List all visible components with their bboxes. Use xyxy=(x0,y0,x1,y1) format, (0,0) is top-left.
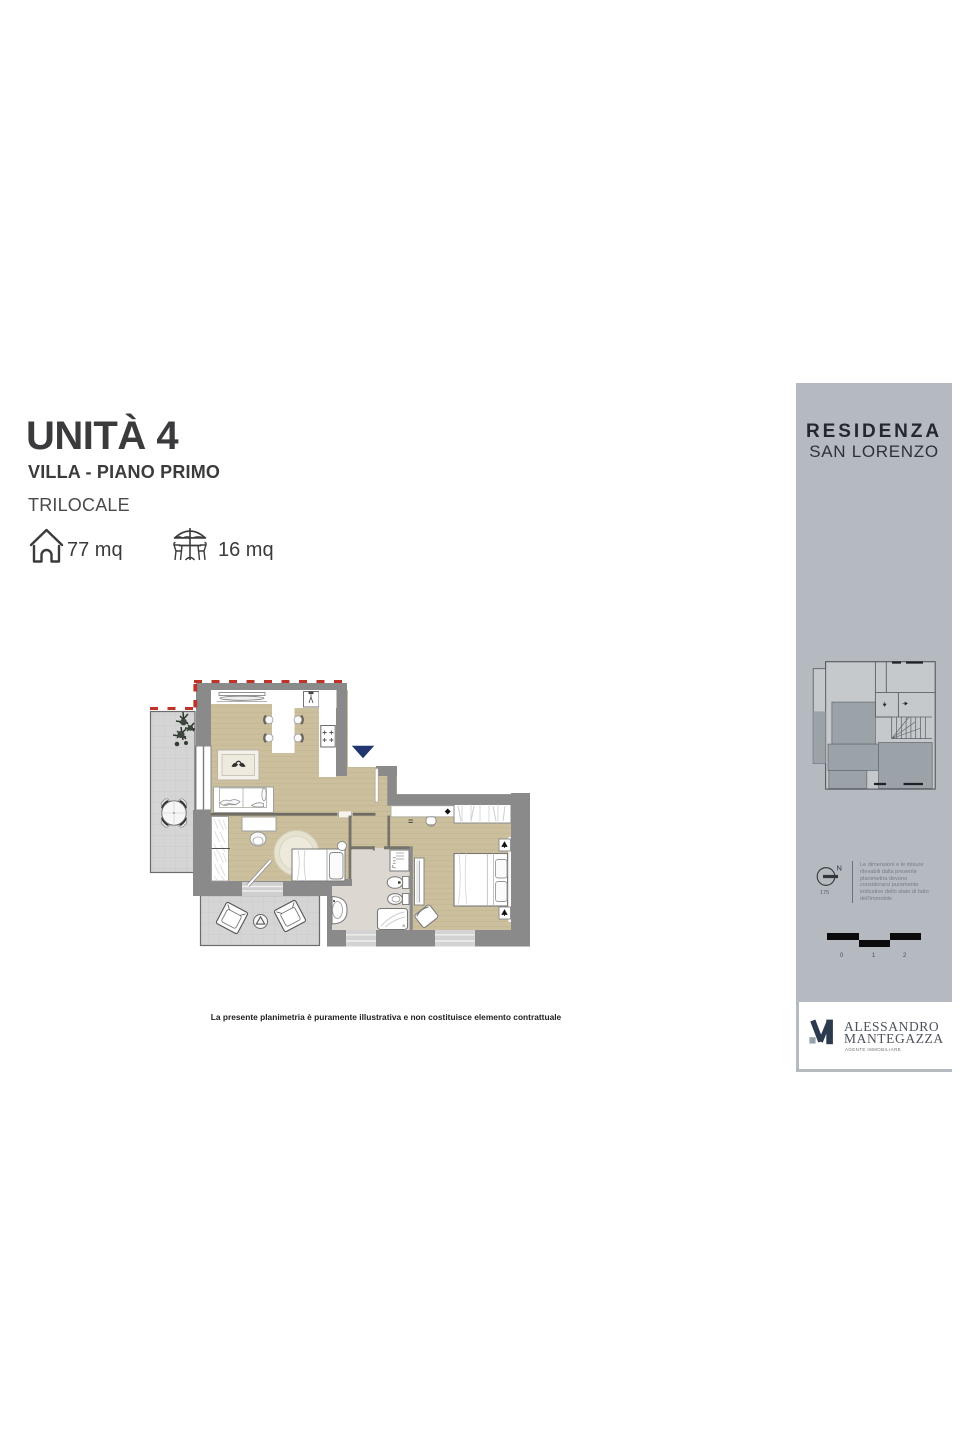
svg-text:N: N xyxy=(837,864,842,873)
svg-text:0: 0 xyxy=(840,953,844,959)
svg-text:175: 175 xyxy=(820,890,829,896)
svg-text:2: 2 xyxy=(903,953,907,959)
svg-text:1: 1 xyxy=(872,953,876,959)
